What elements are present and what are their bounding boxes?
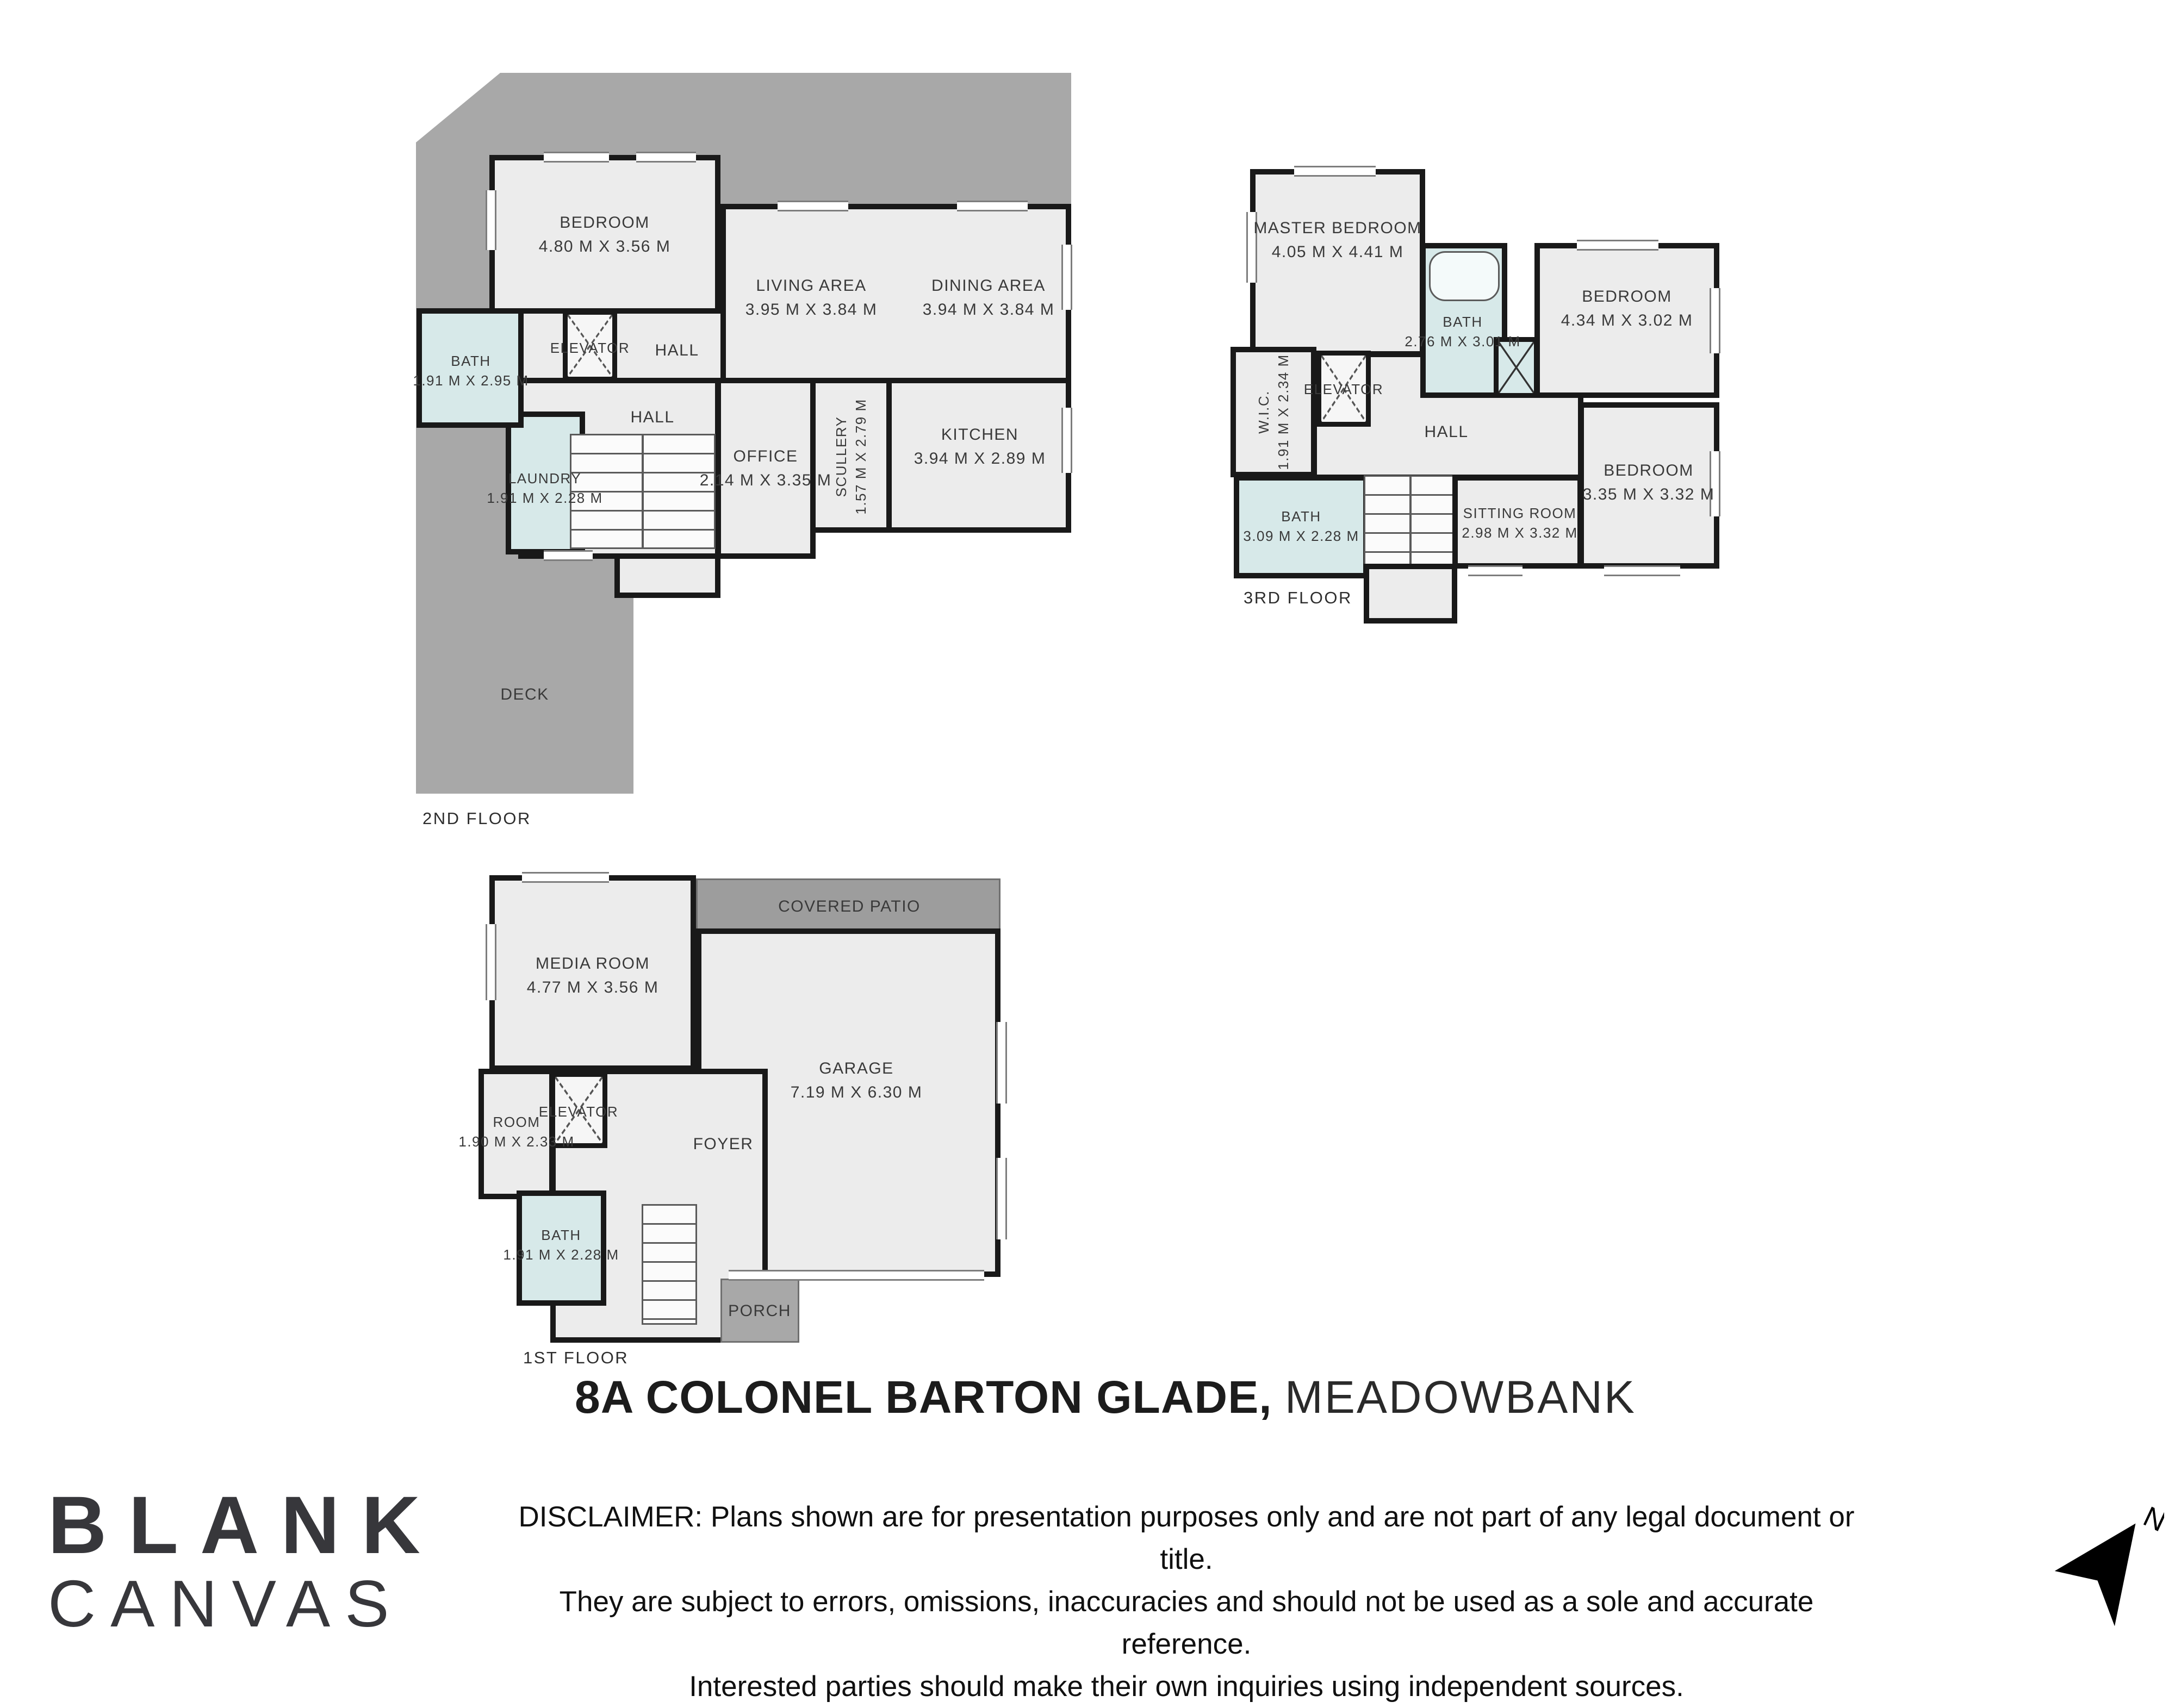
logo-blank-canvas: BLANK CANVAS bbox=[48, 1484, 442, 1642]
window bbox=[957, 201, 1028, 211]
property-title: 8A COLONEL BARTON GLADE, MEADOWBANK bbox=[575, 1371, 1636, 1424]
window bbox=[544, 550, 593, 561]
room-label: PORCH bbox=[728, 1299, 791, 1323]
room-label: BATH1.91 M X 2.95 M bbox=[413, 351, 529, 390]
room-label: W.I.C.1.91 M X 2.34 M bbox=[1254, 354, 1293, 470]
room-label: BEDROOM4.80 M X 3.56 M bbox=[539, 211, 671, 259]
window bbox=[1577, 240, 1658, 251]
window bbox=[1604, 565, 1680, 576]
floor-label-1st: 1ST FLOOR bbox=[523, 1348, 629, 1368]
room-label: SITTING ROOM2.98 M X 3.32 M bbox=[1462, 503, 1577, 543]
room-label: HALL bbox=[1424, 420, 1468, 444]
disclaimer-line: They are subject to errors, omissions, i… bbox=[507, 1581, 1866, 1666]
window bbox=[1294, 166, 1376, 177]
room-label: HALL bbox=[655, 339, 699, 363]
room-label: HALL bbox=[630, 406, 674, 429]
stairs-3f bbox=[1364, 475, 1457, 569]
room-label: DECK bbox=[500, 683, 549, 707]
bathtub-icon bbox=[1429, 251, 1500, 301]
window bbox=[1061, 245, 1072, 310]
window bbox=[522, 872, 609, 883]
window bbox=[544, 152, 609, 163]
room-label: ELEVATOR bbox=[539, 1102, 618, 1121]
logo-line-1: BLANK bbox=[48, 1484, 442, 1566]
room-label: KITCHEN3.94 M X 2.89 M bbox=[914, 423, 1046, 471]
disclaimer-line: Interested parties should make their own… bbox=[507, 1666, 1866, 1708]
room-label: DINING AREA3.94 M X 3.84 M bbox=[923, 274, 1055, 322]
room-label: FOYER bbox=[693, 1132, 754, 1156]
room-label: BATH3.09 M X 2.28 M bbox=[1243, 507, 1359, 546]
room-label: COVERED PATIO bbox=[778, 895, 921, 919]
disclaimer-text: DISCLAIMER: Plans shown are for presenta… bbox=[507, 1496, 1866, 1708]
property-suburb: MEADOWBANK bbox=[1285, 1372, 1636, 1423]
property-address: 8A COLONEL BARTON GLADE, bbox=[575, 1372, 1272, 1423]
room-label: BEDROOM3.35 M X 3.32 M bbox=[1583, 459, 1715, 507]
room-label: ELEVATOR bbox=[550, 338, 630, 358]
room-label: LAUNDRY1.91 M X 2.28 M bbox=[487, 469, 602, 508]
north-arrow-icon: N bbox=[2050, 1492, 2164, 1631]
window bbox=[996, 1158, 1007, 1239]
window bbox=[636, 152, 696, 163]
window bbox=[1468, 565, 1522, 576]
window bbox=[996, 1022, 1007, 1104]
stair-extension-2f bbox=[614, 553, 720, 598]
stairs-1f bbox=[642, 1204, 697, 1325]
svg-text:N: N bbox=[2139, 1500, 2164, 1538]
floor-label-2nd: 2ND FLOOR bbox=[422, 809, 531, 828]
window bbox=[486, 924, 496, 1000]
room-label: ELEVATOR bbox=[1304, 379, 1383, 399]
floor-label-3rd: 3RD FLOOR bbox=[1244, 588, 1352, 608]
room-label: BEDROOM4.34 M X 3.02 M bbox=[1561, 285, 1693, 333]
window bbox=[486, 190, 496, 250]
room-label: GARAGE7.19 M X 6.30 M bbox=[791, 1057, 923, 1105]
room-label: SCULLERY1.57 M X 2.79 M bbox=[831, 398, 871, 514]
stair-extension-3f bbox=[1364, 564, 1457, 624]
room-label: BATH2.76 M X 3.01 M bbox=[1405, 312, 1520, 351]
logo-line-2: CANVAS bbox=[48, 1566, 442, 1642]
room-label: BATH1.91 M X 2.28 M bbox=[503, 1225, 619, 1264]
window bbox=[1061, 408, 1072, 473]
room-label: LIVING AREA3.95 M X 3.84 M bbox=[745, 274, 878, 322]
room-label: MASTER BEDROOM4.05 M X 4.41 M bbox=[1253, 216, 1421, 264]
disclaimer-line: DISCLAIMER: Plans shown are for presenta… bbox=[507, 1496, 1866, 1581]
window bbox=[778, 201, 848, 211]
room-label: OFFICE2.14 M X 3.35 M bbox=[700, 445, 832, 493]
garage-door bbox=[729, 1270, 984, 1281]
room-label: MEDIA ROOM4.77 M X 3.56 M bbox=[527, 952, 659, 1000]
window bbox=[1710, 288, 1720, 353]
floorplan-canvas: BEDROOM4.80 M X 3.56 M LIVING AREA3.95 M… bbox=[0, 0, 2175, 1631]
